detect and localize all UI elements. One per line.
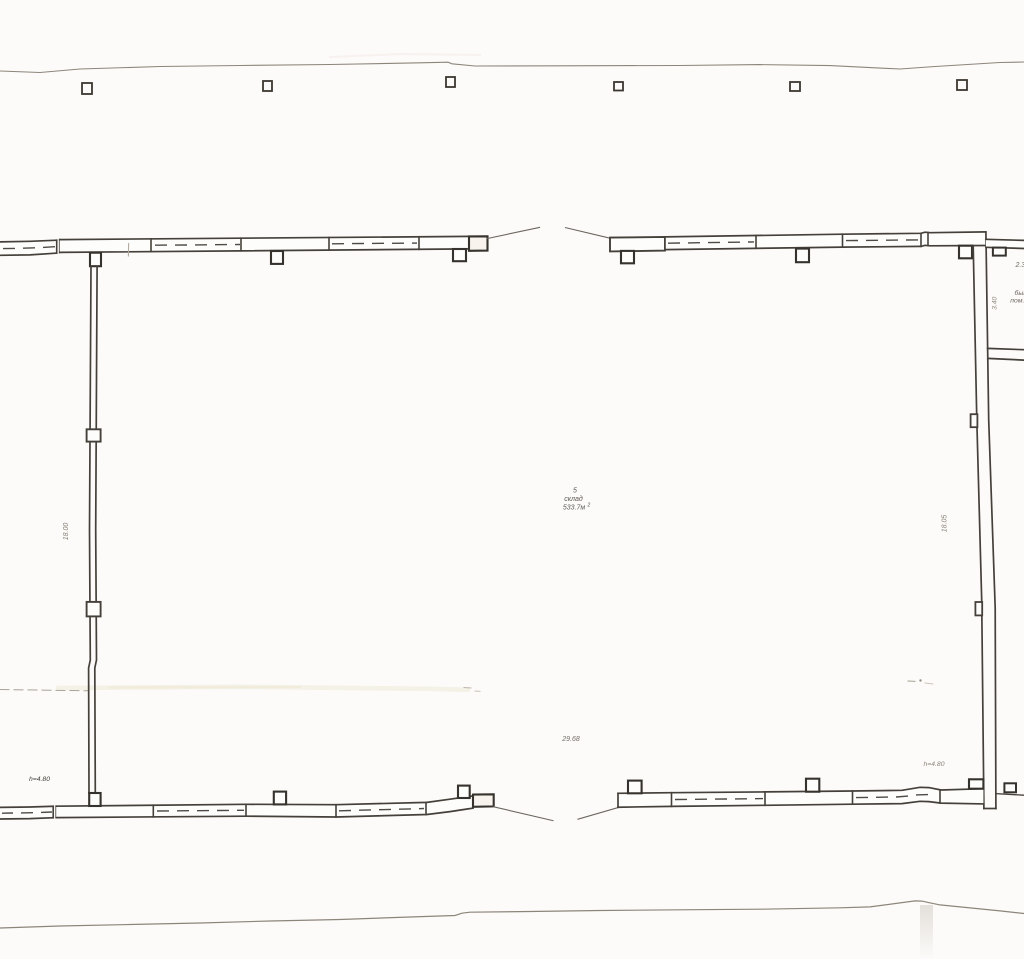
- svg-text:3.40: 3.40: [992, 296, 999, 309]
- svg-text:29.68: 29.68: [561, 736, 580, 743]
- svg-text:быт: быт: [1015, 289, 1024, 297]
- svg-text:533.7м: 533.7м: [563, 505, 586, 512]
- svg-text:18.05: 18.05: [942, 515, 949, 533]
- svg-text:пом.: пом.: [1010, 297, 1024, 304]
- svg-text:склад: склад: [564, 495, 583, 503]
- svg-text:5: 5: [573, 488, 577, 495]
- svg-text:h=4.80: h=4.80: [29, 776, 50, 783]
- svg-text:h=4.80: h=4.80: [924, 761, 945, 768]
- svg-text:2: 2: [587, 503, 591, 509]
- svg-text:18.00: 18.00: [63, 523, 70, 541]
- svg-text:2.3: 2.3: [1015, 262, 1024, 269]
